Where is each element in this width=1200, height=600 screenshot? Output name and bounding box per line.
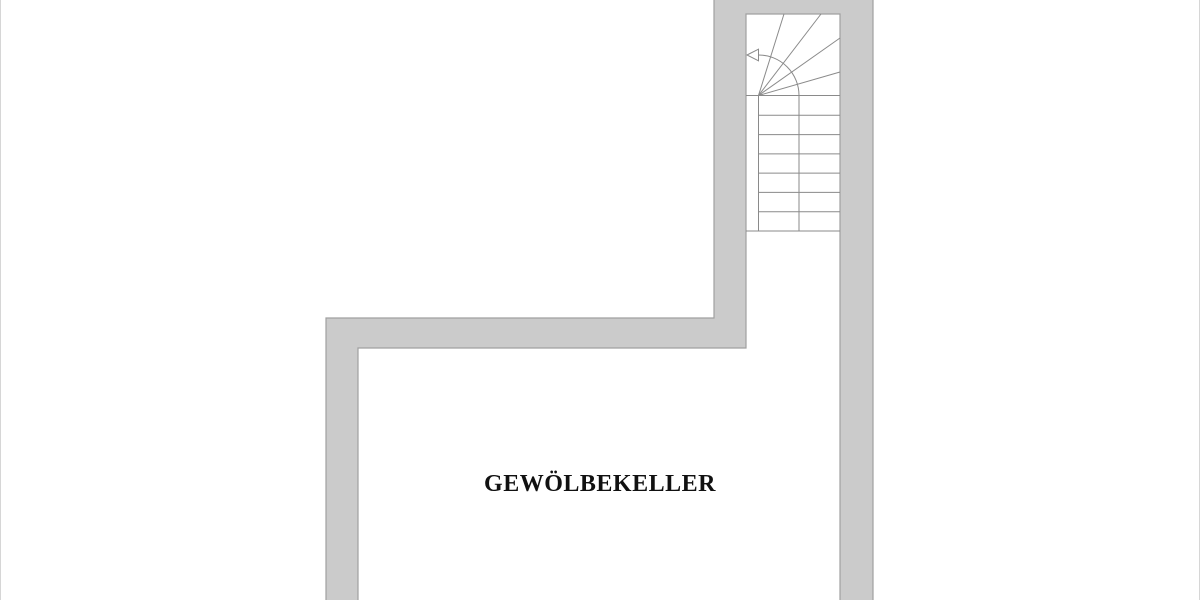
arrow-left-icon: [747, 49, 759, 61]
stair-winder-tread-line: [759, 38, 841, 96]
staircase: [746, 14, 840, 231]
stair-winder-tread-line: [759, 14, 822, 96]
room-label: GEWÖLBEKELLER: [359, 471, 841, 498]
floor-plan: GEWÖLBEKELLER: [1, 0, 1199, 600]
floor-plan-canvas: [1, 0, 1200, 600]
wall-outline: [326, 0, 873, 600]
